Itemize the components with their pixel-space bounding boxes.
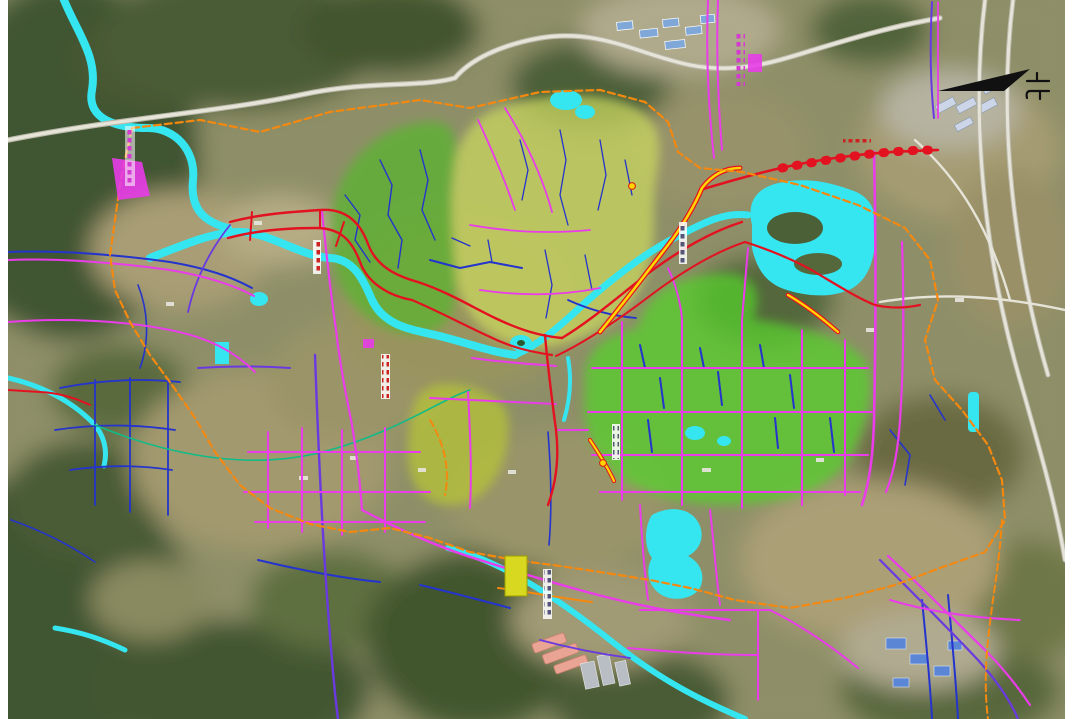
magenta-parcel-3 xyxy=(363,339,374,348)
road-label-4 xyxy=(543,569,552,619)
map-svg xyxy=(8,0,1065,719)
yellow-parcel xyxy=(505,556,527,596)
magenta-parcel-2 xyxy=(748,54,762,72)
zone-bright-green xyxy=(584,317,870,504)
road-label-2 xyxy=(736,34,745,86)
map-canvas xyxy=(8,0,1065,719)
road-label-7 xyxy=(313,240,321,274)
road-label-3 xyxy=(381,354,390,399)
road-label-6 xyxy=(612,424,620,460)
road-label-5 xyxy=(679,222,687,264)
road-label-1 xyxy=(125,126,135,186)
road-label-8 xyxy=(843,139,871,146)
page xyxy=(0,0,1080,719)
